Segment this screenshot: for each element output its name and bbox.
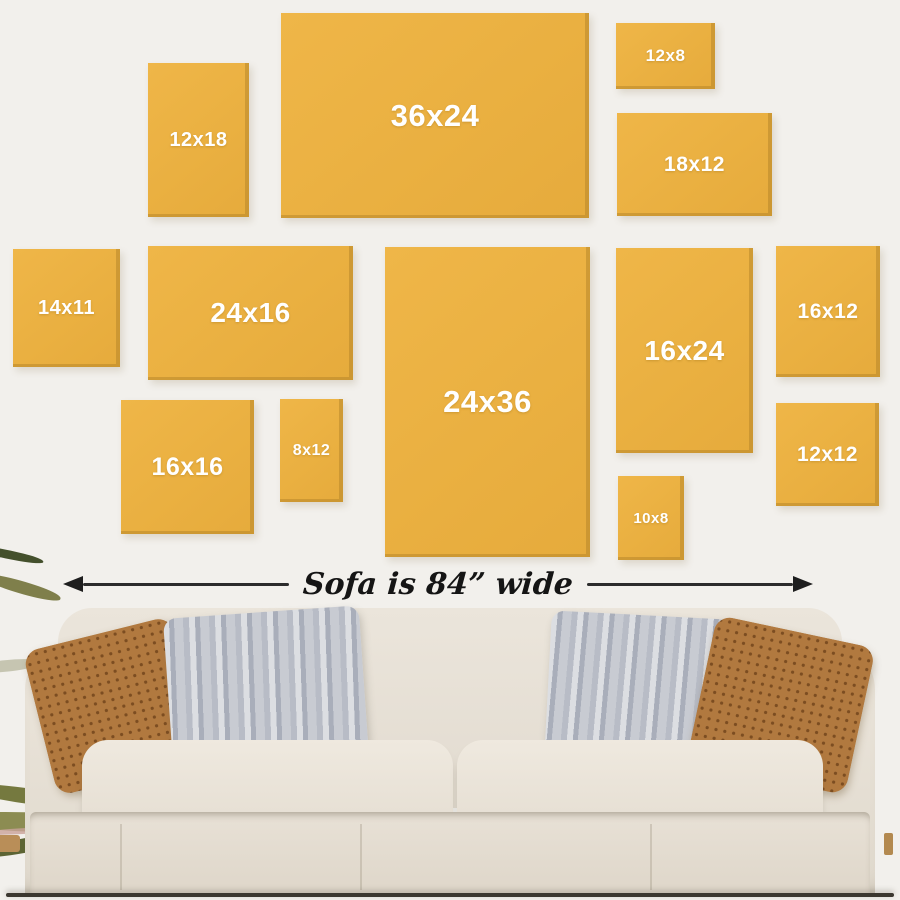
sofa-width-label: Sofa is 84” wide	[288, 567, 588, 602]
frame-18x12: 18x12	[617, 113, 772, 216]
sofa-base-seam	[120, 824, 122, 890]
sofa-base-seam	[650, 824, 652, 890]
frame-size-label: 16x16	[151, 453, 223, 482]
frame-size-label: 18x12	[664, 153, 725, 177]
plant-leaf-icon	[0, 544, 44, 565]
arrow-line	[587, 583, 793, 586]
frame-16x16: 16x16	[121, 400, 254, 534]
frame-size-label: 14x11	[38, 297, 95, 320]
frame-12x8: 12x8	[616, 23, 715, 89]
planter-edge	[0, 835, 20, 852]
frame-24x16: 24x16	[148, 246, 353, 380]
frame-size-label: 8x12	[293, 442, 331, 460]
sofa-width-annotation: Sofa is 84” wide	[63, 566, 813, 602]
frame-size-label: 12x18	[169, 129, 227, 152]
frame-8x12: 8x12	[280, 399, 343, 502]
plant-leaf-icon	[0, 572, 62, 604]
frame-size-label: 12x8	[646, 46, 686, 66]
frame-36x24: 36x24	[281, 13, 589, 218]
frame-16x12: 16x12	[776, 246, 880, 377]
arrowhead-left-icon	[63, 576, 83, 592]
frame-12x12: 12x12	[776, 403, 879, 506]
floor-shadow-line	[6, 893, 894, 897]
frame-size-label: 16x24	[644, 335, 724, 367]
frame-size-label: 12x12	[797, 443, 858, 467]
frame-size-label: 24x16	[210, 297, 290, 329]
size-guide-image: 12x18 36x24 12x8 18x12 14x11 24x16 24x36…	[0, 0, 900, 900]
sofa-base	[30, 812, 870, 896]
frame-size-label: 36x24	[391, 98, 480, 134]
sofa-base-seam	[360, 824, 362, 890]
frame-12x18: 12x18	[148, 63, 249, 217]
frame-14x11: 14x11	[13, 249, 120, 367]
arrow-line	[83, 583, 289, 586]
frame-size-label: 10x8	[633, 510, 668, 527]
frame-24x36: 24x36	[385, 247, 590, 557]
frame-16x24: 16x24	[616, 248, 753, 453]
arrowhead-right-icon	[793, 576, 813, 592]
frame-size-label: 24x36	[443, 384, 532, 420]
frame-10x8: 10x8	[618, 476, 684, 560]
frame-size-label: 16x12	[798, 300, 859, 324]
sofa-leg	[884, 833, 893, 855]
